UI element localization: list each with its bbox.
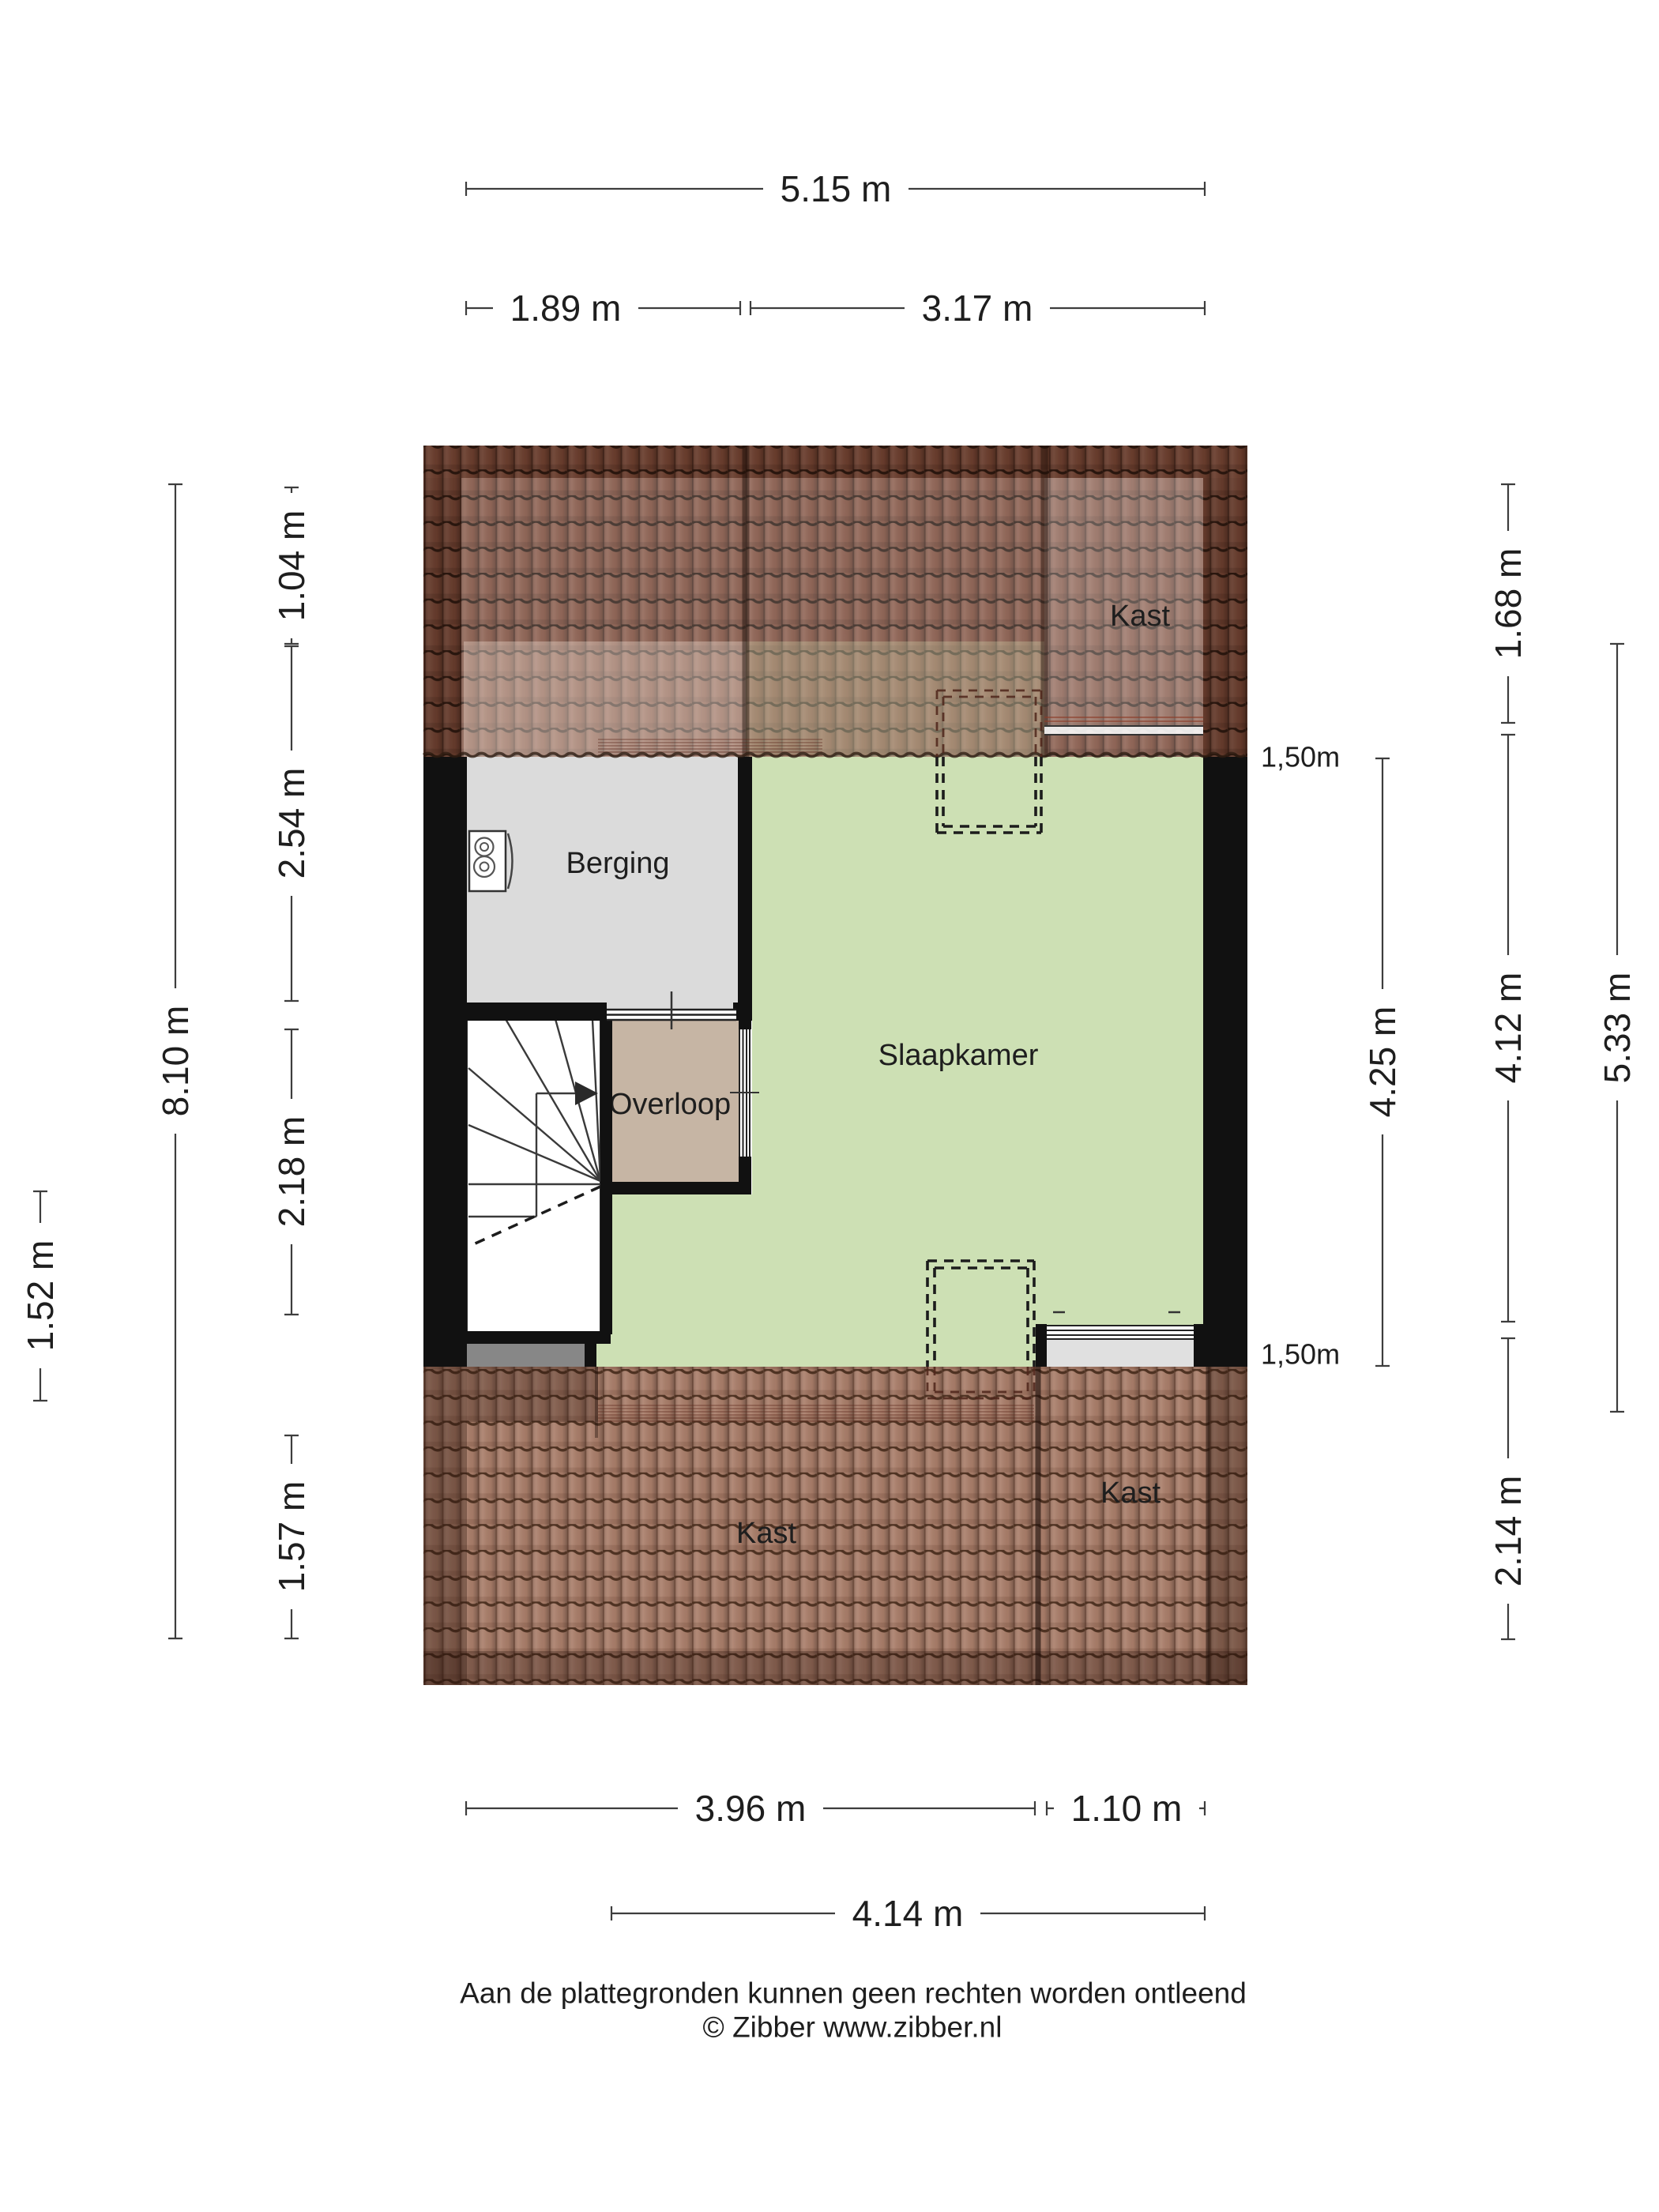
- svg-text:1.57 m: 1.57 m: [271, 1481, 312, 1593]
- svg-text:Kast: Kast: [736, 1517, 796, 1550]
- svg-text:4.25 m: 4.25 m: [1362, 1006, 1403, 1118]
- svg-text:4.14 m: 4.14 m: [852, 1893, 964, 1934]
- svg-text:Berging: Berging: [566, 847, 670, 880]
- svg-text:8.10 m: 8.10 m: [155, 1006, 196, 1117]
- svg-text:1,50m: 1,50m: [1261, 741, 1340, 773]
- svg-text:5.15 m: 5.15 m: [781, 168, 892, 209]
- svg-text:1.10 m: 1.10 m: [1071, 1788, 1183, 1829]
- svg-text:3.96 m: 3.96 m: [695, 1788, 807, 1829]
- svg-text:Overloop: Overloop: [609, 1088, 731, 1121]
- svg-text:2.54 m: 2.54 m: [271, 768, 312, 879]
- svg-text:1.04 m: 1.04 m: [271, 510, 312, 622]
- svg-text:Kast: Kast: [1110, 600, 1170, 633]
- svg-text:Aan de plattegronden kunnen ge: Aan de plattegronden kunnen geen rechten…: [460, 1977, 1247, 2010]
- svg-text:3.17 m: 3.17 m: [922, 288, 1033, 329]
- svg-text:1.68 m: 1.68 m: [1488, 548, 1529, 660]
- svg-text:1,50m: 1,50m: [1261, 1338, 1340, 1371]
- svg-text:1.52 m: 1.52 m: [20, 1240, 61, 1352]
- svg-text:2.14 m: 2.14 m: [1488, 1476, 1529, 1587]
- svg-text:2.18 m: 2.18 m: [271, 1116, 312, 1228]
- svg-text:Slaapkamer: Slaapkamer: [878, 1039, 1039, 1072]
- svg-text:© Zibber www.zibber.nl: © Zibber www.zibber.nl: [703, 2011, 1003, 2044]
- svg-text:5.33 m: 5.33 m: [1597, 972, 1638, 1084]
- svg-text:4.12 m: 4.12 m: [1488, 972, 1529, 1084]
- svg-text:1.89 m: 1.89 m: [510, 288, 622, 329]
- svg-text:Kast: Kast: [1100, 1477, 1161, 1510]
